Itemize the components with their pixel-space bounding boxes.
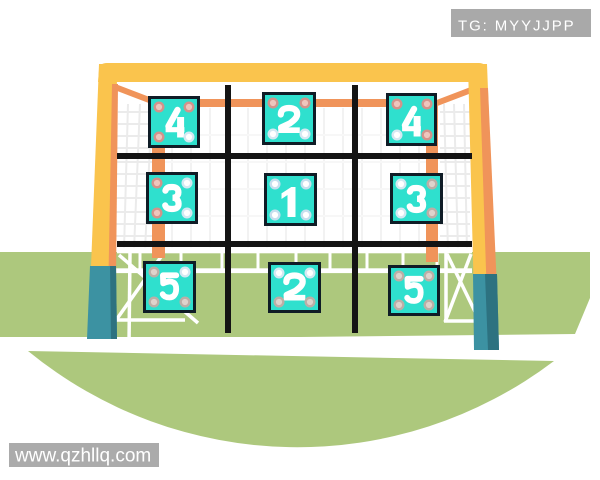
svg-text:TG: MYYJJPP: TG: MYYJJPP [458, 18, 576, 35]
svg-text:www.qzhllq.com: www.qzhllq.com [14, 446, 151, 467]
